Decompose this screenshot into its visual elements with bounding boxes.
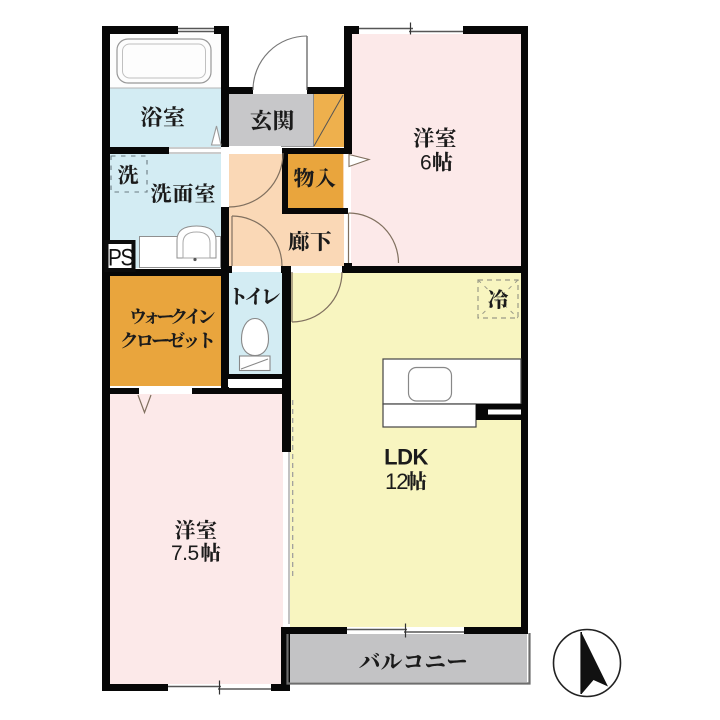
- svg-text:LDK: LDK: [384, 445, 428, 470]
- svg-text:6: 6: [420, 152, 432, 175]
- svg-text:12: 12: [385, 469, 408, 494]
- svg-text:PS: PS: [108, 245, 133, 272]
- svg-text:7.5: 7.5: [171, 542, 199, 565]
